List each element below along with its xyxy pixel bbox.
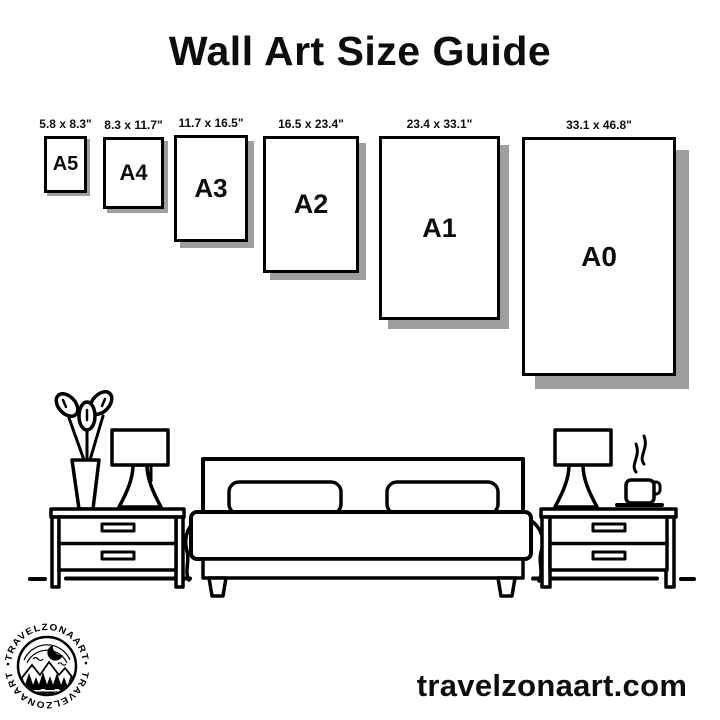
lamp-shade — [112, 430, 168, 465]
size-item-a1: 23.4 x 33.1" A1 — [379, 136, 500, 320]
drawer-handle — [593, 552, 625, 559]
lamp-base — [119, 465, 161, 507]
bed-foot-right — [498, 578, 515, 596]
dimension-label-a0: 33.1 x 46.8" — [566, 118, 632, 132]
bed — [186, 459, 543, 596]
paper-box-a4: A4 — [103, 137, 164, 209]
bed-base — [203, 559, 523, 578]
steam — [642, 436, 645, 464]
size-item-a2: 16.5 x 23.4" A2 — [263, 136, 359, 273]
brand-logo: •TRAVELZONAART• TRAVELZONAART — [2, 620, 94, 712]
dimension-label-a2: 16.5 x 23.4" — [278, 117, 344, 131]
paper-box-a2: A2 — [263, 136, 359, 273]
website-url: travelzonaart.com — [392, 668, 712, 704]
lamp-base — [555, 465, 597, 507]
paper-box-a3: A3 — [174, 135, 248, 242]
size-item-a0: 33.1 x 46.8" A0 — [522, 137, 676, 376]
dimension-label-a3: 11.7 x 16.5" — [178, 116, 243, 130]
mattress — [191, 512, 531, 559]
size-item-a3: 11.7 x 16.5" A3 — [174, 135, 248, 242]
lamp-right — [555, 430, 611, 507]
paper-box-a0: A0 — [522, 137, 676, 376]
vase — [72, 460, 99, 509]
lamp-shade — [555, 430, 611, 465]
nightstand-left — [51, 388, 184, 587]
paper-box-a5: A5 — [44, 136, 87, 193]
size-item-a5: 5.8 x 8.3" A5 — [44, 136, 87, 193]
page-title: Wall Art Size Guide — [0, 28, 720, 75]
drawer-handle — [102, 524, 134, 531]
coffee-cup — [617, 436, 662, 505]
paper-box-a1: A1 — [379, 136, 500, 320]
bed-foot-left — [209, 578, 226, 596]
pillow-right — [387, 482, 498, 514]
drawer-handle — [593, 524, 625, 531]
pillow-left — [229, 482, 341, 514]
size-item-a4: 8.3 x 11.7" A4 — [103, 137, 164, 209]
plant-vase — [52, 388, 116, 509]
dimension-label-a4: 8.3 x 11.7" — [104, 118, 162, 132]
steam — [634, 444, 637, 472]
bedroom-illustration — [0, 378, 720, 618]
cup-body — [626, 480, 654, 503]
nightstand-right — [541, 430, 676, 587]
dimension-label-a1: 23.4 x 33.1" — [407, 117, 473, 131]
lamp-left — [112, 430, 168, 507]
dimension-label-a5: 5.8 x 8.3" — [39, 117, 91, 131]
drawer-handle — [102, 552, 134, 559]
